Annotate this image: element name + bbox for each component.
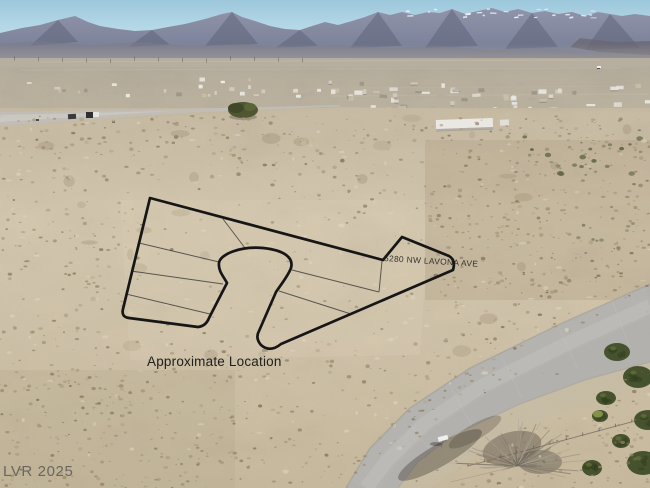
distant-vehicle xyxy=(597,66,601,68)
distant-vehicle-shadow xyxy=(597,68,600,69)
photo-grain xyxy=(0,104,650,488)
aerial-photo: 5280 NW LAVONA AVE Approximate Location … xyxy=(0,0,650,488)
aerial-photo-canvas xyxy=(0,0,650,488)
